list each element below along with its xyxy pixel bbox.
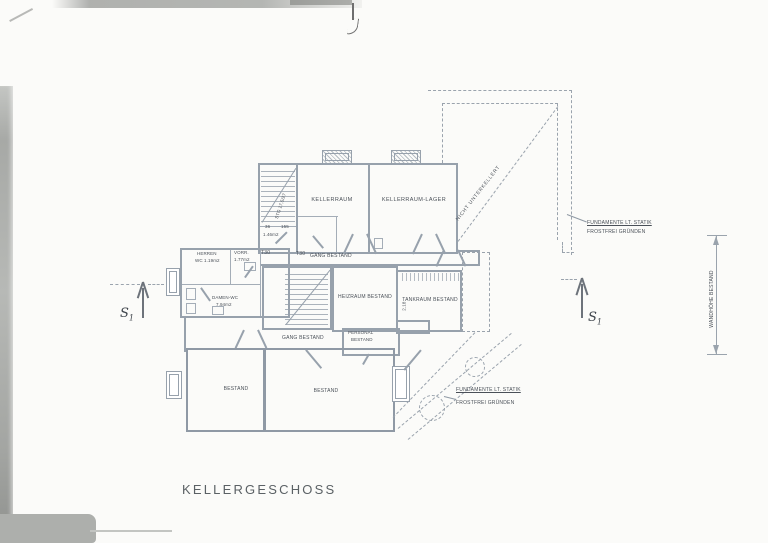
- scan-shadow-left: [0, 86, 13, 543]
- label-vorr-1: VORR.: [234, 250, 249, 255]
- chimney-block-2: [391, 150, 421, 164]
- wall-left-lower: [184, 316, 186, 352]
- section-right-label: S1: [588, 310, 602, 327]
- label-fundamente-upper-2: FROSTFREI GRÜNDEN: [587, 229, 645, 235]
- chimney-block-1: [322, 150, 352, 164]
- leader-fundamente-lower: [444, 396, 456, 400]
- dashed-inner-left: [442, 103, 443, 163]
- leader-fundamente-upper: [567, 214, 587, 222]
- label-vorr-2: 1.77m2: [234, 257, 250, 262]
- kellerraum-partition-v: [336, 216, 337, 252]
- dim-arrow-down: [713, 345, 719, 354]
- dim-stair-36: 36: [265, 224, 270, 229]
- lager-fixture: [374, 238, 383, 249]
- label-personal-2: BESTAND: [351, 337, 373, 342]
- dim-arrow-up: [713, 236, 719, 245]
- window-block-right: [392, 366, 410, 402]
- drawing-title: KELLERGESCHOSS: [182, 482, 336, 497]
- label-fundamente-lower-1: FUNDAMENTE LT. STATIK: [456, 387, 521, 393]
- label-bestand-right: BESTAND: [306, 388, 346, 394]
- foundation-circle-1: [465, 357, 485, 377]
- label-herren-2: WC 1.19m2: [195, 258, 220, 263]
- dim-wandhoehe-line: [716, 236, 717, 354]
- dim-stair-155: 155: [281, 224, 289, 229]
- wc-fixture-2: [186, 303, 196, 314]
- dashed-outer-top: [428, 90, 572, 91]
- label-gang-bestand-lower: GANG BESTAND: [282, 335, 324, 341]
- dashed-extension: [462, 252, 490, 332]
- annex-divider-v2: [260, 250, 261, 316]
- section-left-arrow-shaft: [142, 288, 144, 318]
- label-kellerraum-lager: KELLERRAUM-LAGER: [376, 197, 452, 204]
- label-nicht-unterkellert: NICHT UNTERKELLERT: [455, 140, 521, 222]
- label-wandhoehe: WANDHÖHE BESTAND: [709, 254, 715, 344]
- dim-tankraum: 2.18: [401, 295, 406, 311]
- door-bestand-leaf-2: [403, 350, 421, 371]
- scan-scratch-topleft: [9, 8, 33, 22]
- corner-mark-h: [562, 252, 574, 253]
- wc-fixture-1: [186, 288, 196, 300]
- label-damen-2: 7.94m2: [216, 302, 232, 307]
- dim-stair-area: 1.46m2: [263, 232, 279, 237]
- label-t30-b: T30: [296, 251, 305, 257]
- dim-wandhoehe-tick-bottom: [707, 354, 727, 355]
- section-left-label: S1: [120, 306, 134, 323]
- fold-mark-hook: [347, 17, 359, 35]
- scan-blob-bottomleft: [0, 514, 96, 543]
- room-kellerraum: [296, 163, 370, 254]
- annex-divider-h: [182, 284, 260, 285]
- foundation-circle-2: [419, 395, 445, 421]
- label-fundamente-lower-2: FROSTFREI GRÜNDEN: [456, 400, 514, 406]
- annex-entry-block: [166, 268, 180, 296]
- dashed-inner-right: [557, 103, 558, 240]
- scan-line-bottom: [90, 530, 172, 532]
- corner-mark-v: [562, 242, 563, 252]
- label-gang-bestand-upper: GANG BESTAND: [310, 253, 352, 259]
- floor-plan-scan: STG 17,5/27 KELLERRAUM KELLERRAUM-LAGER …: [0, 0, 768, 543]
- label-damen-1: DAMEN-WC: [212, 295, 238, 300]
- annex-divider-v1: [230, 250, 231, 284]
- window-block-left: [166, 371, 182, 399]
- dashed-outer-right: [571, 90, 572, 255]
- label-fundamente-upper-1: FUNDAMENTE LT. STATIK: [587, 220, 652, 226]
- label-kellerraum: KELLERRAUM: [302, 197, 362, 204]
- section-right-dashline: [561, 279, 577, 280]
- dashed-diagonal-sw-1: [398, 333, 512, 429]
- tankraum-wall-hatch: [399, 273, 459, 281]
- door-stair-exit-leaf-2: [257, 330, 267, 349]
- section-left-dashline: [110, 284, 140, 285]
- label-heizraum: HEIZRAUM BESTAND: [334, 294, 396, 300]
- section-left-dashline-2: [148, 284, 164, 285]
- dashed-inner-top: [442, 103, 558, 104]
- building-jog-se: [396, 320, 430, 334]
- door-stair-exit-leaf-1: [235, 330, 245, 349]
- label-personal-1: PERSONAL: [348, 330, 373, 335]
- section-right-arrow-shaft: [581, 284, 583, 318]
- label-bestand-left: BESTAND: [216, 386, 256, 392]
- kellerraum-partition-h: [298, 216, 338, 217]
- dashed-diagonal-main: [458, 106, 559, 242]
- label-herren-1: HERREN: [197, 251, 217, 256]
- label-tankraum: TANKRAUM BESTAND: [402, 297, 458, 303]
- scan-shadow-top-dark: [290, 0, 352, 5]
